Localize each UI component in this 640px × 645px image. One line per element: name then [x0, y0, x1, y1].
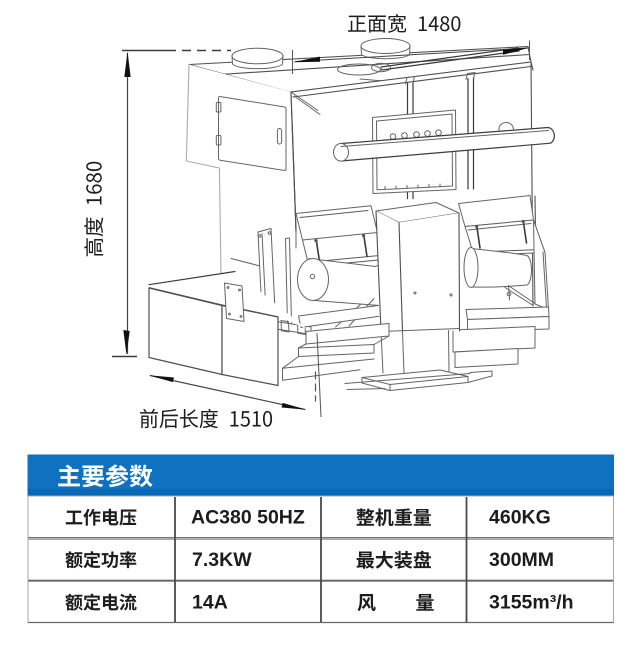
- svg-text:460KG: 460KG: [489, 507, 551, 529]
- svg-text:14A: 14A: [192, 592, 228, 614]
- svg-text:7.3KW: 7.3KW: [192, 549, 252, 571]
- svg-text:3155m³/h: 3155m³/h: [489, 592, 574, 614]
- svg-text:AC380 50HZ: AC380 50HZ: [191, 507, 305, 529]
- svg-text:300MM: 300MM: [489, 549, 554, 571]
